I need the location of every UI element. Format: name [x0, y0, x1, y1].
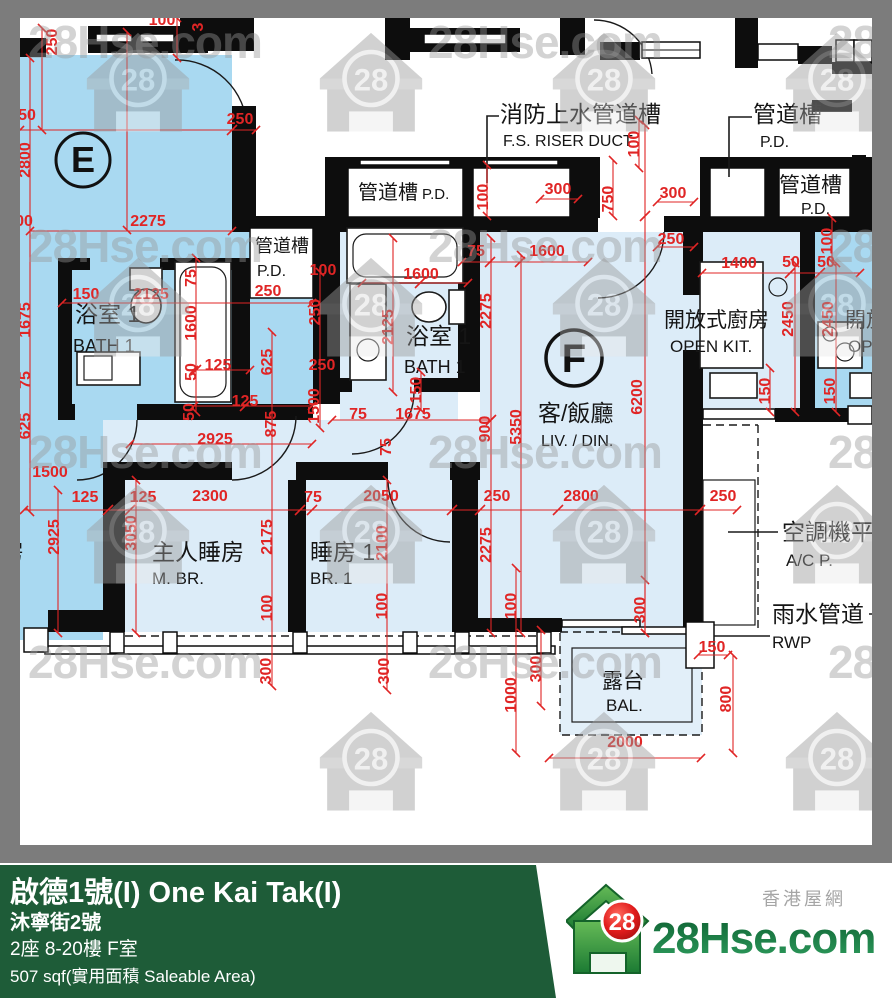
svg-text:28Hse.com: 28Hse.com — [428, 426, 662, 478]
svg-text:28Hse.com: 28Hse.com — [428, 220, 662, 272]
label-bal-en: BAL. — [606, 696, 643, 715]
dim-label-16: 250 — [255, 283, 282, 300]
dim-label-4: 50 — [18, 107, 36, 124]
dim-label-57: 150 — [408, 377, 425, 404]
label-pd-mid-cn: 管道槽 — [358, 181, 418, 204]
unit-badge-e-label: E — [71, 139, 95, 180]
dim-label-20: 50 — [181, 403, 198, 421]
floorplan-page: 28 — [0, 0, 892, 998]
label-pd-e-cn: 管道槽 — [255, 236, 309, 256]
svg-text:28Hse.com: 28Hse.com — [28, 220, 262, 272]
dim-label-46: 800 — [718, 686, 735, 713]
dim-label-40: 300 — [376, 658, 393, 685]
watermark-text: 28Hse.com — [28, 16, 262, 68]
property-area: 507 sqf(實用面積 Saleable Area) — [10, 962, 256, 987]
property-title: 啟德1號(I) One Kai Tak(I) — [10, 869, 341, 911]
dim-label-59: 75 — [349, 406, 367, 423]
dim-label-34: 250 — [484, 488, 511, 505]
dim-label-27: 2925 — [46, 519, 63, 555]
dim-label-36: 250 — [710, 488, 737, 505]
dim-label-39: 100 — [374, 593, 391, 620]
dim-label-22: 875 — [263, 411, 280, 438]
dim-label-67: 750 — [600, 186, 617, 213]
svg-text:28Hse.com: 28Hse.com — [428, 636, 662, 688]
brand-logo: 28 28Hse.com 香港屋網 — [566, 881, 886, 991]
house-logo-icon: 28 — [566, 885, 648, 973]
dim-label-65: 300 — [545, 181, 572, 198]
label-bath-f-cn: 浴室 1 — [406, 323, 471, 349]
dim-label-64: 100 — [475, 184, 492, 211]
label-pd-right-en: P.D. — [801, 201, 830, 218]
property-info-footer: 啟德1號(I) One Kai Tak(I) 沐寧街2號 2座 8-20樓 F室… — [0, 863, 892, 998]
brand-number: 28 — [609, 909, 636, 936]
dim-label-26: 2300 — [192, 488, 228, 505]
dim-label-58: 1500 — [306, 388, 323, 424]
property-address: 沐寧街2號 — [10, 906, 101, 935]
dim-label-75: 150 — [757, 378, 774, 405]
dim-label-51: 6200 — [629, 379, 646, 415]
svg-text:28Hse.com: 28Hse.com — [28, 426, 262, 478]
footer-info-panel: 啟德1號(I) One Kai Tak(I) 沐寧街2號 2座 8-20樓 F室… — [0, 865, 560, 998]
dim-label-61: 75 — [378, 438, 395, 456]
dim-label-60: 1675 — [395, 406, 431, 423]
property-unit: 2座 8-20樓 F室 — [10, 934, 138, 961]
svg-text:28Hse.com: 28Hse.com — [428, 16, 662, 68]
floor-plan-drawing: 28 — [0, 0, 892, 998]
dim-label-29: 2175 — [259, 519, 276, 555]
dim-label-19: 625 — [259, 349, 276, 376]
dim-label-68: 300 — [660, 185, 687, 202]
label-openkit-en: OPEN KIT. — [670, 337, 752, 356]
dim-label-45: 150 — [699, 639, 726, 656]
dim-label-53: 100 — [310, 262, 337, 279]
dim-label-38: 2275 — [478, 527, 495, 563]
dim-label-70: 1400 — [721, 255, 757, 272]
label-fs-riser-en: F.S. RISER DUCT — [503, 133, 633, 150]
dim-label-32: 75 — [304, 489, 322, 506]
brand-name: 28Hse.com — [652, 914, 875, 963]
dim-label-66: 100 — [626, 131, 643, 158]
label-pd-mid-en: P.D. — [422, 186, 449, 203]
dim-label-24: 125 — [72, 489, 99, 506]
dim-label-17: 50 — [183, 363, 200, 381]
dim-label-3: 250 — [227, 111, 254, 128]
svg-text:28Hse.com: 28Hse.com — [28, 636, 262, 688]
label-openkit-cn: 開放式廚房 — [664, 309, 769, 332]
dim-label-48: 2275 — [478, 293, 495, 329]
dim-label-44: 300 — [632, 597, 649, 624]
dim-label-56: 250 — [309, 357, 336, 374]
label-bath-f-en: BATH 1 — [404, 357, 466, 377]
label-rwp-en: RWP — [772, 633, 811, 652]
dim-label-18: 125 — [205, 357, 232, 374]
dim-label-76: 150 — [822, 378, 839, 405]
dim-label-21: 125 — [232, 393, 259, 410]
label-rwp-cn: 雨水管道 — [772, 601, 864, 627]
label-pd-topright-en: P.D. — [760, 134, 789, 151]
brand-tagline: 香港屋網 — [762, 889, 846, 909]
dim-label-41: 100 — [503, 593, 520, 620]
dim-label-30: 100 — [259, 595, 276, 622]
label-livdin-cn: 客/飯廳 — [538, 400, 613, 426]
dim-label-71: 50 — [782, 254, 800, 271]
label-pd-right-cn: 管道槽 — [779, 174, 842, 197]
